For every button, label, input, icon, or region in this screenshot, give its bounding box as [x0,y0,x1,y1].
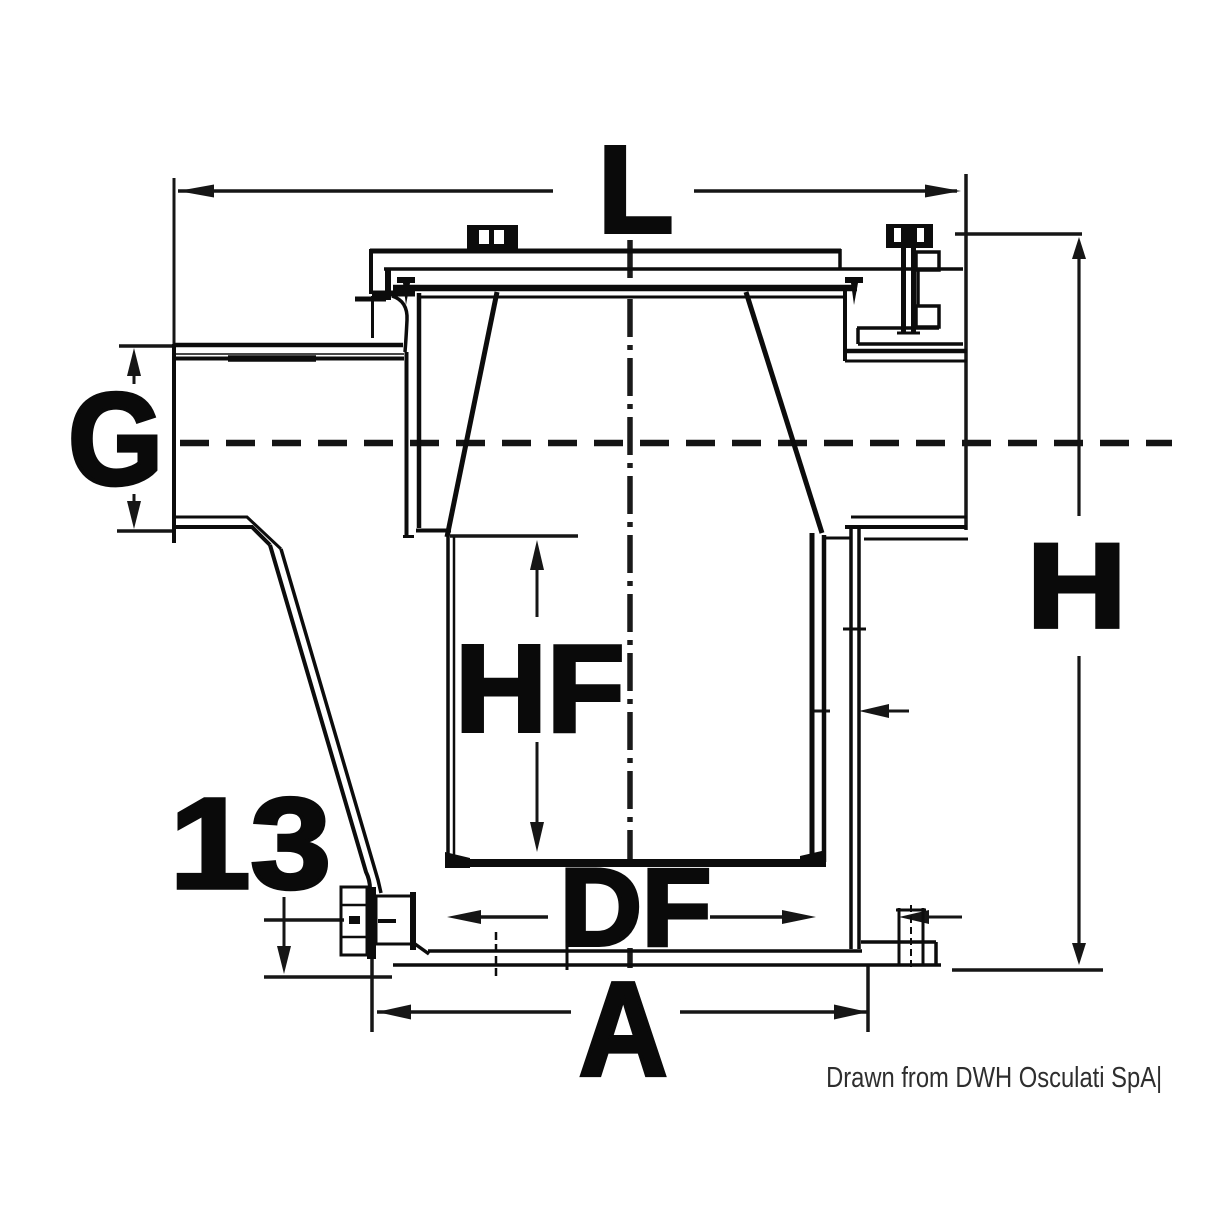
svg-text:G: G [68,366,163,512]
svg-text:H: H [1027,519,1127,652]
svg-text:Drawn from DWH Osculati SpA|: Drawn from DWH Osculati SpA| [826,1061,1162,1094]
svg-text:A: A [579,955,667,1104]
svg-text:L: L [598,121,673,259]
svg-text:13: 13 [170,772,331,916]
svg-text:HF: HF [455,619,624,757]
